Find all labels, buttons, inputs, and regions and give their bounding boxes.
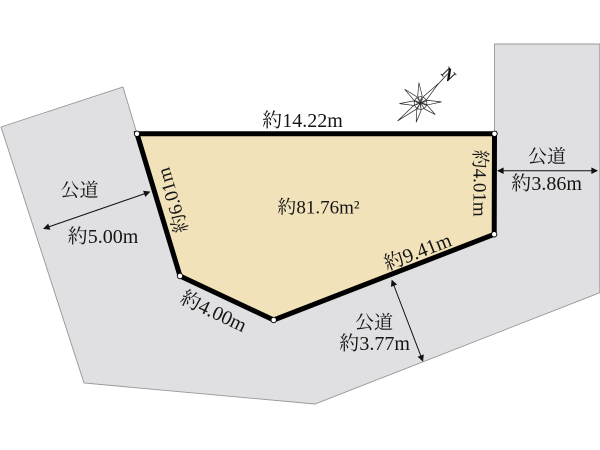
svg-text:5.00m: 5.00m [88,226,139,248]
svg-text:3.86m: 3.86m [531,173,582,195]
svg-text:3.77m: 3.77m [359,333,410,355]
svg-text:14.22m: 14.22m [282,110,343,132]
svg-text:4.01m: 4.01m [469,169,490,217]
svg-text:81.76m²: 81.76m² [296,198,360,219]
